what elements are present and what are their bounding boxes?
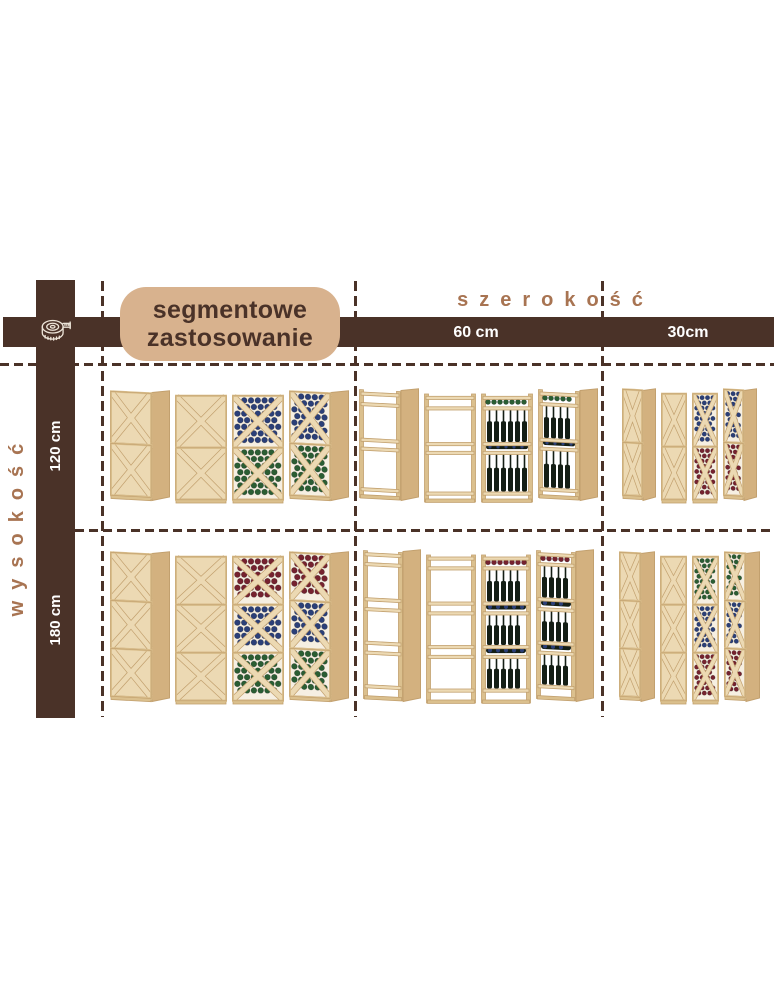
height-axis-title: wysokość bbox=[3, 430, 31, 630]
wine-rack-illustration bbox=[619, 551, 655, 705]
wine-rack-illustration bbox=[426, 553, 476, 705]
wine-rack-illustration bbox=[424, 392, 476, 504]
wine-rack-illustration bbox=[110, 390, 170, 504]
column-label-30cm: 30cm bbox=[602, 324, 774, 342]
wine-rack-illustration bbox=[481, 553, 531, 705]
rack-cell-120cm-segment bbox=[106, 390, 352, 504]
wine-rack-illustration bbox=[723, 388, 757, 504]
title-badge-line1: segmentowe bbox=[153, 296, 307, 324]
rack-cell-180cm-segment bbox=[106, 551, 352, 705]
rack-cell-180cm-60cm bbox=[358, 550, 598, 705]
wine-rack-illustration bbox=[660, 555, 687, 705]
wine-rack-illustration bbox=[232, 394, 284, 504]
wine-rack-illustration bbox=[289, 551, 349, 705]
tape-measure-icon bbox=[39, 316, 73, 346]
rack-cell-120cm-30cm bbox=[608, 390, 770, 504]
rack-cell-120cm-60cm bbox=[358, 389, 598, 504]
title-badge: segmentowe zastosowanie bbox=[120, 287, 340, 361]
wine-rack-illustration bbox=[363, 549, 421, 705]
wine-rack-illustration bbox=[175, 394, 227, 504]
column-label-60cm: 60 cm bbox=[355, 324, 597, 342]
wine-rack-illustration bbox=[481, 392, 533, 504]
wine-rack-illustration bbox=[692, 555, 719, 705]
wine-rack-illustration bbox=[538, 388, 598, 504]
infographic-canvas: segmentowe zastosowanie szerokość wysoko… bbox=[0, 0, 774, 1000]
row-label-180cm: 180 cm bbox=[46, 575, 66, 665]
rack-cell-180cm-30cm bbox=[608, 551, 770, 705]
wine-rack-illustration bbox=[175, 555, 227, 705]
title-badge-line2: zastosowanie bbox=[147, 324, 313, 352]
wine-rack-illustration bbox=[110, 551, 170, 705]
wine-rack-illustration bbox=[536, 549, 594, 705]
grid-dashed-line-row-middle bbox=[75, 529, 774, 532]
wine-rack-illustration bbox=[359, 388, 419, 504]
wine-rack-illustration bbox=[289, 390, 349, 504]
row-label-120cm: 120 cm bbox=[46, 401, 66, 491]
wine-rack-illustration bbox=[232, 555, 284, 705]
grid-dashed-line-row-top bbox=[0, 363, 774, 366]
width-axis-title: szerokość bbox=[400, 289, 700, 312]
wine-rack-illustration bbox=[661, 392, 687, 504]
wine-rack-illustration bbox=[692, 392, 718, 504]
wine-rack-illustration bbox=[622, 388, 656, 504]
wine-rack-illustration bbox=[724, 551, 760, 705]
